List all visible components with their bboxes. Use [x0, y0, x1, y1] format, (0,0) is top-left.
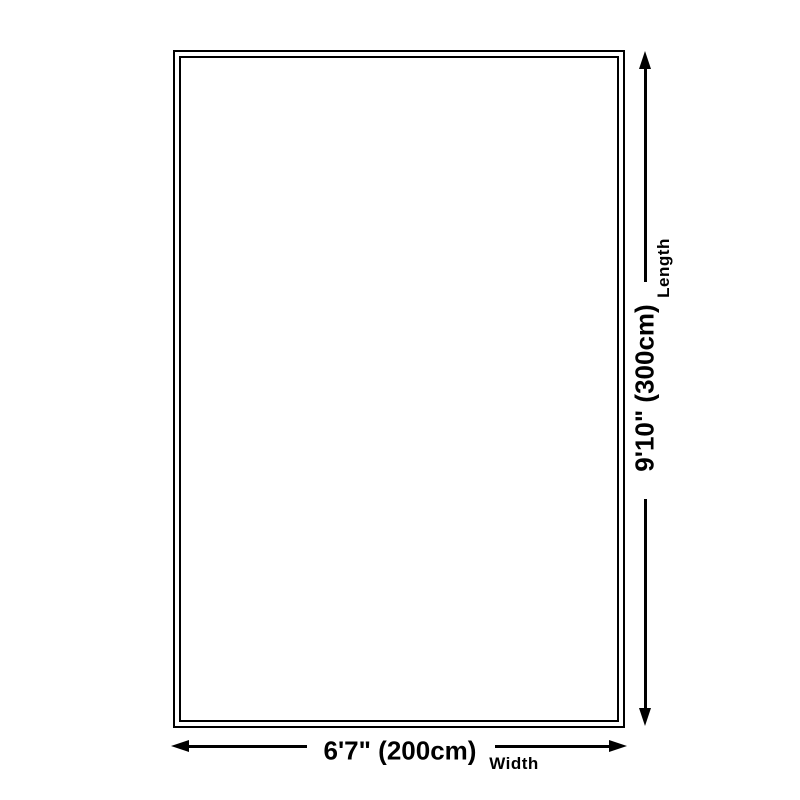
width-dimension-value: 6'7" (200cm) [324, 736, 477, 767]
width-dimension-line-right [495, 745, 616, 748]
length-dimension-value: 9'10" (300cm) [630, 304, 661, 471]
width-axis-label: Width [489, 754, 539, 774]
length-axis-label: Length [654, 238, 674, 298]
rug-outline [173, 50, 625, 728]
length-dimension-line-upper [644, 66, 647, 282]
rug-dimension-diagram: Length 9'10" (300cm) 6'7" (200cm) Width [0, 0, 800, 800]
length-dimension-line-lower [644, 499, 647, 711]
width-dimension-line-left [186, 745, 307, 748]
arrow-down-icon [639, 708, 651, 726]
arrow-right-icon [609, 740, 627, 752]
rug-inner-border [179, 56, 619, 722]
